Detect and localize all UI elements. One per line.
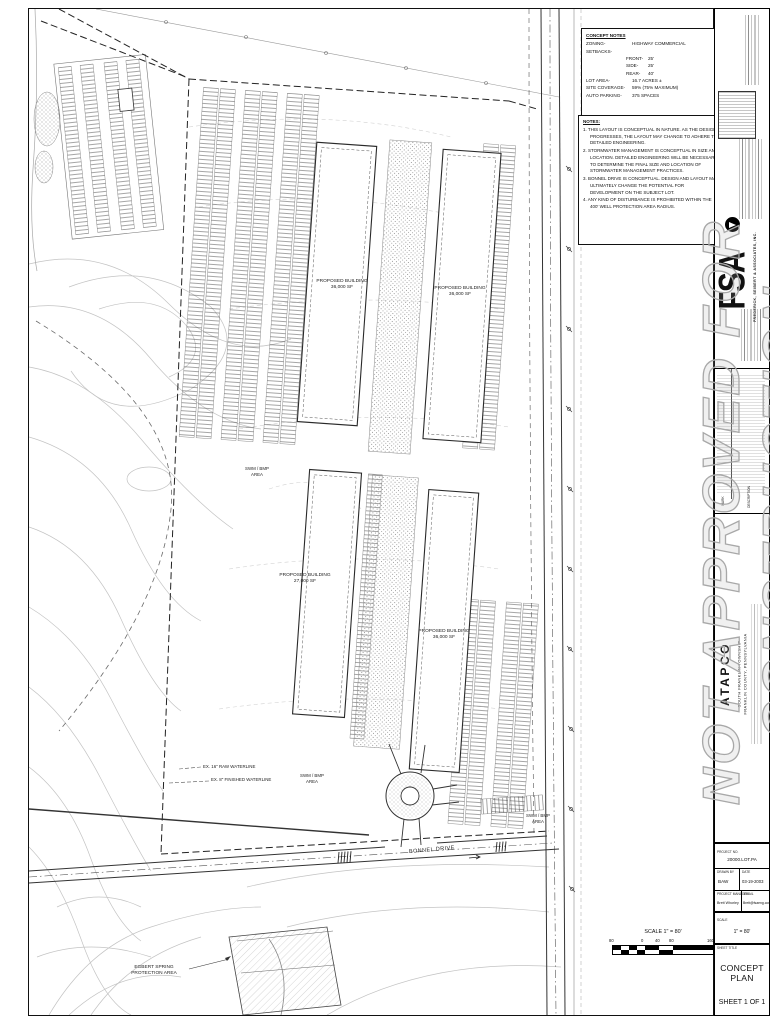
drawn-by-label: DRAWN BY [717, 870, 734, 874]
swm-area-label: SWM / BMPAREA [294, 773, 330, 784]
cell-divider [741, 891, 742, 911]
building-label: PROPOSED BUILDING36,000 SF [311, 279, 373, 291]
certification-box [718, 91, 756, 139]
waterline-label: EX. 8" FINISHED WATERLINE [211, 777, 291, 783]
revisions-description-header: DESCRIPTION [747, 486, 751, 508]
lot-area-label: LOT AREA- [586, 77, 632, 84]
setbacks-label: SETBACKS- [586, 48, 632, 55]
client-name: ATAPCO [718, 642, 732, 706]
sheet-number-row: SHEET 1 OF 1 [715, 993, 769, 1015]
bonnel-drive-road [29, 836, 559, 883]
sheet-title: CONCEPT PLAN [715, 963, 769, 983]
project-location-line2: FRANKLIN COUNTY, PENNSYLVANIA [743, 633, 748, 714]
scale-bar [612, 945, 714, 955]
revisions-section: MARK DESCRIPTION [715, 369, 769, 514]
concept-notes-box: CONCEPT NOTES ZONING-HIGHWAY COMMERCIAL … [581, 28, 722, 120]
building-label: PROPOSED BUILDING36,000 SF [429, 286, 491, 298]
email-label: EMAIL [744, 892, 754, 896]
existing-parking-lot [54, 54, 164, 239]
building-label: PROPOSED BUILDING27,000 SF [274, 573, 336, 585]
drawn-by-value: BAW [718, 879, 728, 884]
front-label: FRONT- [626, 55, 648, 62]
scale-text: SCALE 1" = 80' [607, 929, 719, 935]
date-label: DATE [742, 870, 750, 874]
project-section: ATAPCO SOUTH FRANKLIN TOWNSHIP FRANKLIN … [715, 514, 769, 844]
swm-area-label: SWM / BMPAREA [239, 466, 275, 477]
side-label: SIDE- [626, 62, 648, 69]
note-item: 3. BONNEL DRIVE IS CONCEPTUAL. DESIGN AN… [583, 176, 719, 196]
sheet-title-row: SHEET TITLE CONCEPT PLAN [715, 945, 769, 993]
swm-pond [35, 151, 53, 183]
date-value: 03-19-2003 [742, 879, 763, 884]
zoning-value: HIGHWAY COMMERCIAL [632, 40, 686, 47]
right-highway [529, 9, 581, 1015]
site-coverage-value: 59% (75% MAXIMUM) [632, 84, 678, 91]
pm-email-row: PROJECT MANAGER Brett Whorley EMAIL Bret… [715, 891, 769, 913]
parking-row-bottom [481, 795, 544, 814]
road-direction-arrow [469, 855, 480, 859]
fsa-logo-mark [725, 217, 740, 232]
sheet-number: SHEET 1 OF 1 [715, 999, 769, 1006]
spring-protection-label: EGBERT SPRINGPROTECTION AREA [123, 965, 185, 977]
office-addresses [739, 139, 763, 219]
graphic-scale: SCALE 1" = 80' 80 0 40 80 160 [607, 929, 719, 971]
firm-fine-print [741, 309, 761, 361]
project-no-value: 20000.LOT.PA [715, 857, 769, 862]
note-item: 1. THIS LAYOUT IS CONCEPTUAL IN NATURE. … [583, 127, 719, 147]
auto-parking-value: 375 SPACES [632, 92, 659, 99]
note-item: 4. ANY KIND OF DISTURBANCE IS PROHIBITED… [583, 197, 719, 211]
scale-label: SCALE [717, 918, 727, 922]
lot-area-value: 16.7 ACRES ± [632, 77, 662, 84]
stipple-strip [354, 475, 419, 750]
building-label: PROPOSED BUILDING36,000 SF [413, 629, 475, 641]
utility-poles [566, 166, 575, 892]
swm-area-label: SWM / BMPAREA [520, 813, 556, 824]
revisions-mark-header: MARK [721, 496, 725, 505]
side-value: 25' [648, 62, 654, 69]
waterline-label: EX. 16" RAW WATERLINE [203, 764, 283, 770]
title-block: FSA FREDERICK, SEIBERT & ASSOCIATES, INC… [714, 8, 770, 1016]
spring-protection-band [189, 927, 341, 1015]
notes-title: NOTES: [583, 119, 719, 126]
zoning-label: ZONING- [586, 40, 632, 47]
cell-divider [739, 869, 740, 890]
drawing-sheet: CONCEPT NOTES ZONING-HIGHWAY COMMERCIAL … [0, 0, 770, 1024]
concept-notes-title: CONCEPT NOTES [586, 32, 717, 39]
firm-section: FSA FREDERICK, SEIBERT & ASSOCIATES, INC… [715, 9, 769, 369]
pm-value: Brett Whorley [717, 901, 739, 905]
scale-row: SCALE 1" = 80' [715, 917, 769, 945]
stipple-strip [368, 140, 432, 454]
site-coverage-label: SITE COVERAGE- [586, 84, 632, 91]
auto-parking-label: AUTO PARKING- [586, 92, 632, 99]
project-no-label: PROJECT NO. [717, 850, 738, 854]
well-radius-arc [36, 321, 172, 731]
scale-ticks: 80 0 40 80 160 [607, 938, 719, 945]
sheet-title-label: SHEET TITLE [717, 946, 737, 950]
project-fine-print [751, 604, 763, 744]
parking-field-left [179, 87, 319, 444]
project-location-line1: SOUTH FRANKLIN TOWNSHIP [737, 641, 742, 708]
swm-pond [34, 92, 60, 146]
scale-value: 1" = 80' [715, 929, 769, 935]
rear-value: 40' [648, 70, 654, 77]
note-item: 2. STORMWATER MANAGEMENT IS CONCEPTUAL I… [583, 148, 719, 175]
stream-line [32, 9, 37, 271]
overhead-utility-line [96, 9, 559, 97]
notes-box: NOTES: 1. THIS LAYOUT IS CONCEPTUAL IN N… [578, 115, 724, 245]
email-value: Brett@fsaeng.com [743, 901, 770, 905]
plan-drawing-area: CONCEPT NOTES ZONING-HIGHWAY COMMERCIAL … [28, 8, 714, 1016]
revisions-rows [717, 375, 765, 493]
fsa-logo: FSA [712, 253, 755, 310]
project-no-row: PROJECT NO. 20000.LOT.PA [715, 849, 769, 869]
rear-label: REAR- [626, 70, 648, 77]
drawn-date-row: DRAWN BY BAW DATE 03-19-2003 [715, 869, 769, 891]
front-value: 25' [648, 55, 654, 62]
firm-fine-print [745, 15, 761, 85]
